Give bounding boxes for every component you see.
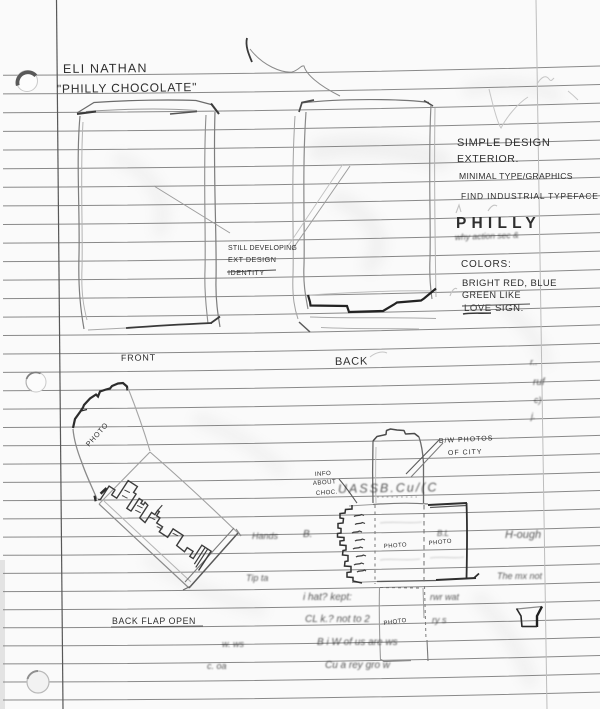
svg-text:Tip ta: Tip ta: [246, 573, 268, 583]
svg-text:BACK: BACK: [335, 355, 368, 368]
svg-text:The mx not: The mx not: [497, 571, 543, 581]
svg-text:INFO: INFO: [315, 470, 332, 478]
svg-text:ELI NATHAN: ELI NATHAN: [63, 61, 148, 76]
svg-text:rwr wat: rwr wat: [430, 592, 459, 602]
svg-text:ruf: ruf: [533, 377, 546, 388]
svg-text:c. oa: c. oa: [207, 661, 227, 671]
svg-text:IDENTITY: IDENTITY: [228, 268, 265, 277]
svg-text:STILL DEVELOPING: STILL DEVELOPING: [228, 245, 297, 252]
svg-text:GREEN LIKE: GREEN LIKE: [462, 290, 521, 300]
svg-text:COLORS:: COLORS:: [461, 259, 512, 270]
svg-text:w. ws: w. ws: [222, 639, 245, 649]
svg-text:"PHILLY CHOCOLATE": "PHILLY CHOCOLATE": [57, 80, 197, 96]
svg-text:SIMPLE DESIGN: SIMPLE DESIGN: [457, 137, 550, 149]
svg-text:Hands: Hands: [252, 531, 279, 541]
svg-text:B.: B.: [303, 529, 312, 540]
svg-text:BACK FLAP OPEN: BACK FLAP OPEN: [112, 616, 196, 626]
svg-text:BRIGHT RED, BLUE: BRIGHT RED, BLUE: [462, 278, 557, 289]
svg-text:ry s: ry s: [432, 615, 447, 625]
svg-text:FRONT: FRONT: [121, 352, 156, 363]
svg-text:CL k.? not to 2: CL k.? not to 2: [305, 614, 370, 625]
svg-text:Cu a rey gro w: Cu a rey gro w: [325, 660, 391, 671]
svg-text:PHILLY: PHILLY: [456, 215, 541, 232]
svg-text:OF CITY: OF CITY: [448, 449, 483, 457]
svg-text:EXT DESIGN: EXT DESIGN: [228, 255, 276, 264]
svg-text:r..: r..: [530, 357, 538, 367]
svg-text:B.L: B.L: [437, 529, 449, 538]
svg-text:UASSB.Cu/(C: UASSB.Cu/(C: [338, 480, 439, 496]
svg-text:EXTERIOR.: EXTERIOR.: [457, 153, 519, 165]
svg-text:FIND INDUSTRIAL TYPEFACE: FIND INDUSTRIAL TYPEFACE: [461, 191, 599, 201]
svg-text:B i W of us are ws: B i W of us are ws: [317, 637, 398, 648]
svg-text:i hat? kept:: i hat? kept:: [303, 592, 352, 603]
svg-text:MINIMAL TYPE/GRAPHICS: MINIMAL TYPE/GRAPHICS: [459, 171, 573, 181]
svg-text:j.: j.: [530, 411, 536, 421]
svg-text:H-ough: H-ough: [505, 529, 541, 541]
svg-text:c): c): [534, 395, 542, 405]
